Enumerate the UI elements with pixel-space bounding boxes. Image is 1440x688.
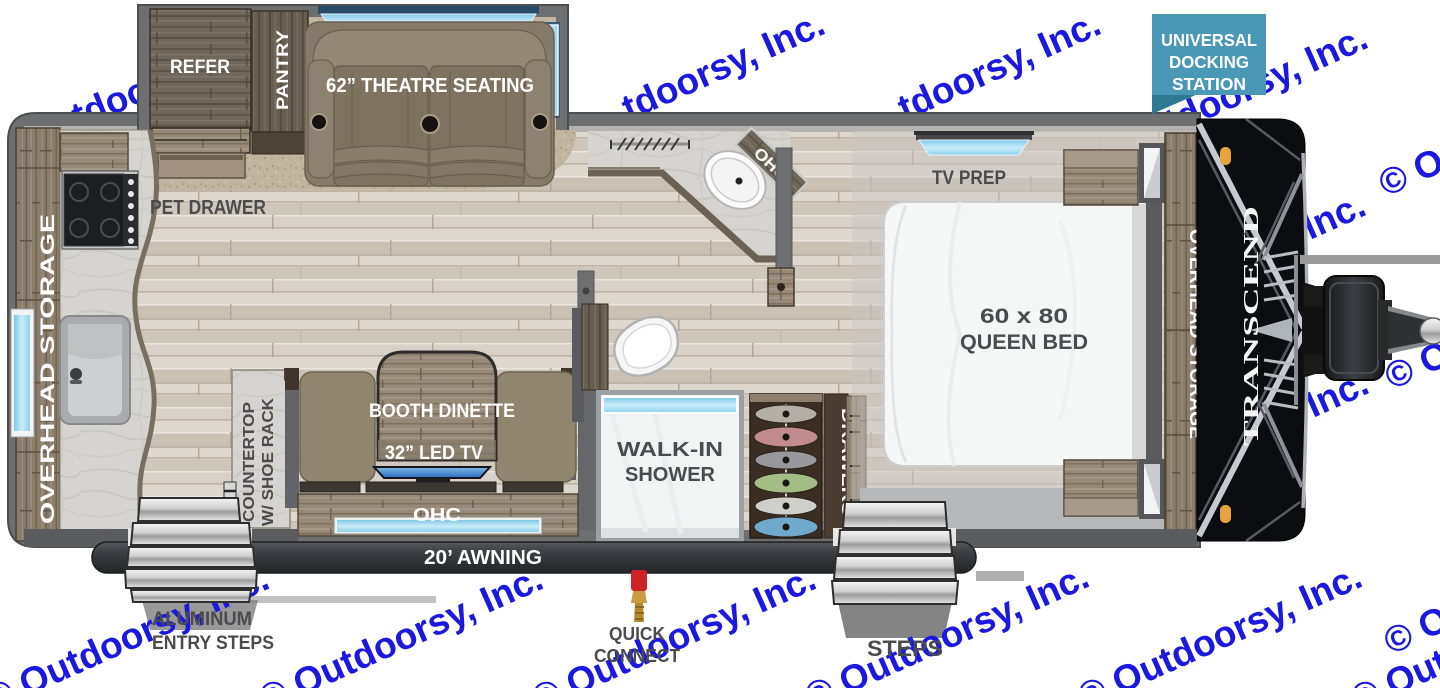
svg-text:62” THEATRE SEATING: 62” THEATRE SEATING (326, 75, 534, 97)
svg-text:TRANSCEND: TRANSCEND (1239, 206, 1263, 446)
svg-text:UNIVERSAL: UNIVERSAL (1161, 30, 1257, 50)
svg-text:COUNTERTOP: COUNTERTOP (241, 402, 258, 522)
svg-text:BOOTH DINETTE: BOOTH DINETTE (369, 401, 515, 422)
svg-text:TV PREP: TV PREP (932, 168, 1006, 189)
svg-text:CONNECT: CONNECT (594, 646, 680, 666)
svg-text:STATION: STATION (1172, 74, 1246, 94)
svg-text:OHC: OHC (413, 505, 461, 525)
svg-text:REFER: REFER (170, 57, 230, 78)
svg-text:OVERHEAD STORAGE: OVERHEAD STORAGE (38, 214, 59, 524)
svg-text:PET DRAWER: PET DRAWER (150, 197, 266, 219)
svg-text:W/ SHOE RACK: W/ SHOE RACK (260, 397, 277, 526)
svg-text:STEPS: STEPS (867, 636, 943, 661)
svg-text:32” LED TV: 32” LED TV (385, 443, 483, 464)
svg-text:SHOWER: SHOWER (625, 464, 716, 486)
svg-text:QUEEN BED: QUEEN BED (960, 331, 1088, 354)
svg-text:20’ AWNING: 20’ AWNING (424, 547, 542, 569)
svg-text:ALUMINUM: ALUMINUM (152, 609, 252, 630)
svg-text:60 x 80: 60 x 80 (980, 305, 1068, 328)
svg-text:QUICK: QUICK (609, 624, 665, 644)
svg-text:WALK-IN: WALK-IN (617, 439, 723, 461)
svg-text:DOCKING: DOCKING (1169, 52, 1249, 72)
svg-text:PANTRY: PANTRY (274, 30, 292, 110)
svg-text:ENTRY STEPS: ENTRY STEPS (152, 633, 274, 654)
